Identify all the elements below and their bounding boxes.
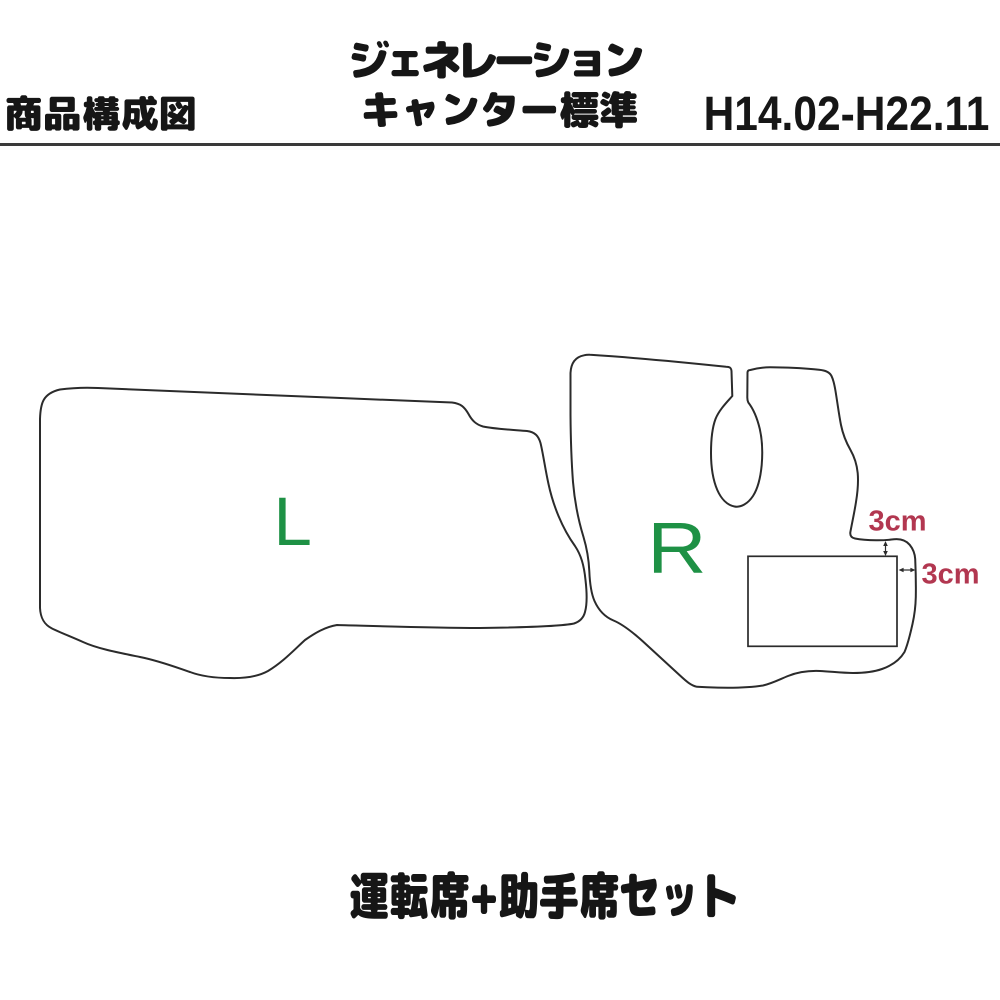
svg-text:H14.02-H22.11: H14.02-H22.11 (704, 87, 990, 141)
svg-text:3cm: 3cm (869, 506, 927, 538)
svg-text:3cm: 3cm (922, 559, 980, 591)
svg-text:L: L (274, 483, 312, 560)
svg-text:R: R (647, 508, 706, 588)
